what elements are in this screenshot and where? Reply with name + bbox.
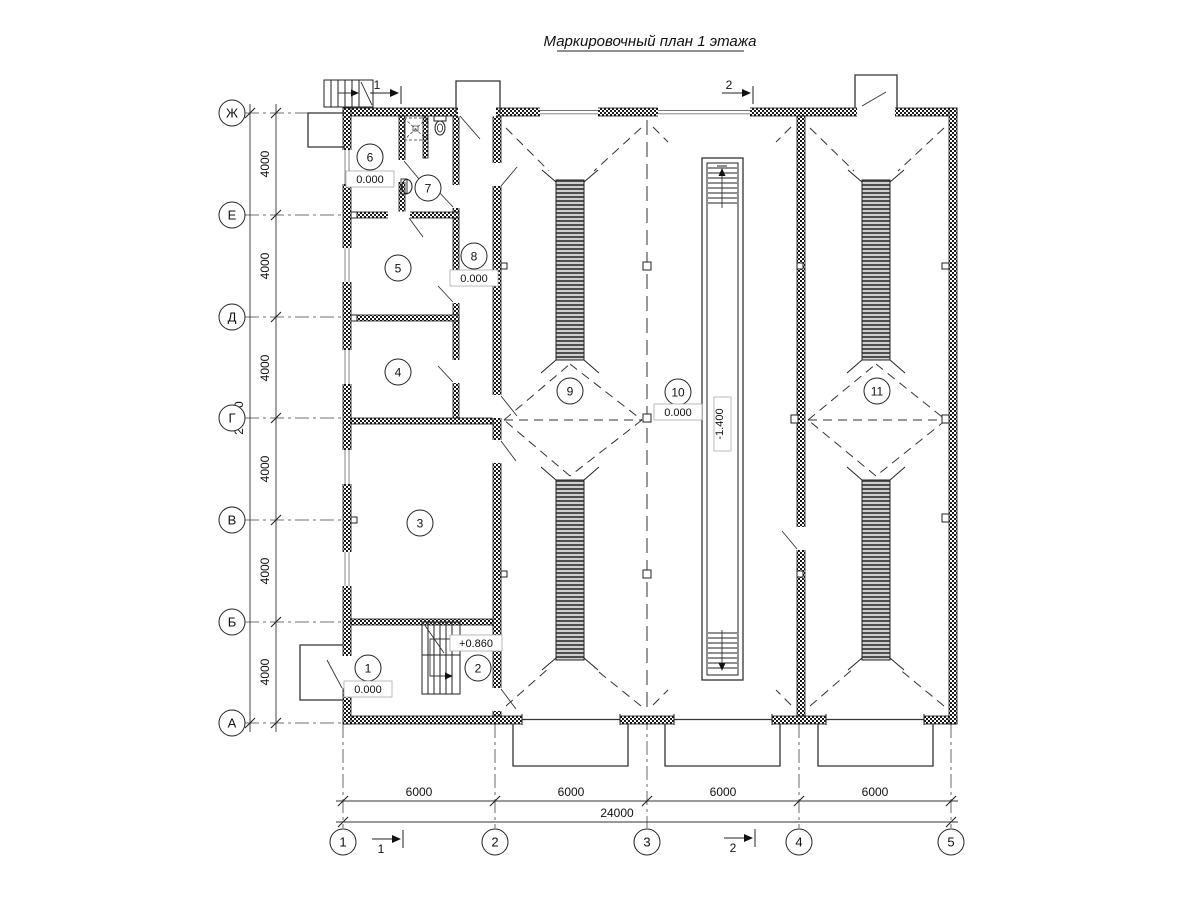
row-axis-bubbles: Ж Е Д Г В Б А [219, 100, 245, 736]
col-axis-3: 3 [643, 835, 650, 850]
room-9-number: 9 [567, 385, 574, 399]
svg-text:2: 2 [730, 841, 737, 855]
exterior-stair [324, 80, 373, 107]
dim-bottom-4: 6000 [862, 785, 889, 799]
row-axis-b: Б [228, 615, 237, 630]
interior-stair [422, 622, 460, 694]
col-axis-5: 5 [947, 835, 954, 850]
room-10-number: 10 [671, 386, 685, 400]
dim-bottom-1: 6000 [406, 785, 433, 799]
dim-left-3: 4000 [258, 354, 272, 381]
col-axis-2: 2 [491, 835, 498, 850]
pilasters [351, 212, 949, 578]
pit-elevation-label: -1.400 [714, 408, 726, 439]
loading-platform-1 [513, 724, 628, 766]
dim-left-5: 4000 [258, 557, 272, 584]
col-axis-bubbles: 1 2 3 4 5 [330, 829, 964, 855]
dim-bottom-total: 24000 [600, 806, 634, 820]
title-block: Маркировочный план 1 этажа [544, 33, 757, 51]
gates [522, 714, 924, 725]
col-axis-4: 4 [795, 835, 802, 850]
porch-top-left [308, 113, 345, 147]
dim-left-4: 4000 [258, 455, 272, 482]
room-1-elevation: 0.000 [354, 684, 382, 696]
dim-left-2: 4000 [258, 252, 272, 279]
row-axis-v: В [228, 513, 237, 528]
loading-platform-2 [665, 724, 780, 766]
pit-ladder-bottom [708, 630, 737, 670]
room-8-number: 8 [471, 250, 478, 264]
row-axis-e: Е [228, 208, 237, 223]
room-4-number: 4 [395, 366, 402, 380]
room-5-number: 5 [395, 262, 402, 276]
drawing-sheet: Маркировочный план 1 этажа [0, 0, 1200, 900]
drawing-title: Маркировочный план 1 этажа [544, 33, 757, 50]
room-1-number: 1 [365, 662, 372, 676]
room-2-number: 2 [475, 662, 482, 676]
room-2-elevation: +0.860 [459, 638, 493, 650]
dim-left-6: 4000 [258, 658, 272, 685]
room-10-elevation: 0.000 [664, 407, 692, 419]
row-axis-d: Д [228, 310, 237, 325]
central-pit: -1.400 [702, 158, 743, 680]
elevation-labels: 0.000 0.000 0.000 +0.860 0.000 [344, 171, 702, 697]
dim-left-1: 4000 [258, 150, 272, 177]
floor-plan-svg: Маркировочный план 1 этажа [0, 0, 1200, 900]
room-11-number: 11 [871, 385, 884, 399]
section-mark-1-bottom: 1 [372, 830, 403, 856]
section-mark-2-bottom: 2 [724, 829, 755, 855]
svg-text:1: 1 [374, 78, 381, 92]
section-mark-2-top: 2 [722, 78, 753, 104]
pit-ladder-top [708, 166, 737, 208]
room-8-elevation: 0.000 [460, 273, 488, 285]
row-axis-g: Г [228, 411, 235, 426]
room-6-number: 6 [367, 151, 374, 165]
row-axis-a: А [228, 716, 237, 731]
svg-text:1: 1 [378, 842, 385, 856]
porch-bottom-left [300, 645, 343, 700]
room-markers: 1 2 3 4 5 6 7 8 9 10 11 [355, 144, 890, 681]
section-mark-1-top: 1 [370, 78, 401, 104]
toilet-icon [434, 116, 446, 135]
loading-platform-3 [818, 724, 933, 766]
room-3-number: 3 [417, 517, 424, 531]
svg-text:2: 2 [726, 78, 733, 92]
dim-bottom-3: 6000 [710, 785, 737, 799]
room-7-number: 7 [425, 182, 432, 196]
col-axis-1: 1 [339, 835, 346, 850]
dim-bottom-2: 6000 [558, 785, 585, 799]
row-axis-zh: Ж [226, 106, 238, 121]
room-6-elevation: 0.000 [356, 174, 384, 186]
vestibule-top-right [855, 75, 897, 108]
